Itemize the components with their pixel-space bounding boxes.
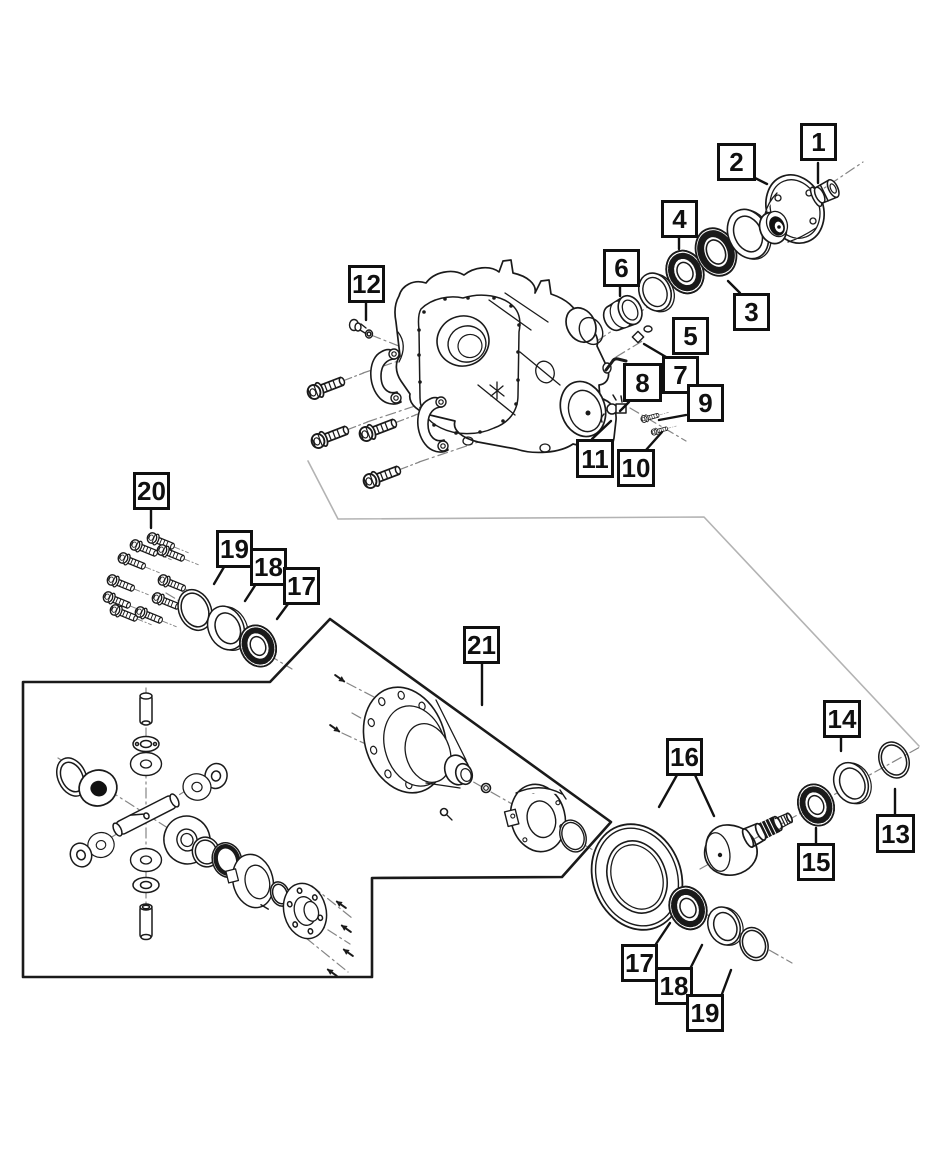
diagram-canvas: [0, 0, 950, 1153]
callout-17[interactable]: 17: [283, 567, 320, 605]
pinion-gear: [703, 808, 796, 875]
pinion-spacer-6: [599, 292, 647, 336]
callout-11[interactable]: 11: [576, 439, 614, 478]
callout-12[interactable]: 12: [348, 265, 385, 303]
callout-15[interactable]: 15: [797, 843, 835, 881]
differential-case: [328, 673, 591, 859]
callout-2[interactable]: 2: [717, 143, 756, 181]
spacer-14: [827, 756, 877, 810]
callout-3[interactable]: 3: [733, 293, 770, 331]
callout-20[interactable]: 20: [133, 472, 170, 510]
callout-17b[interactable]: 17: [621, 944, 658, 982]
callout-6[interactable]: 6: [603, 249, 640, 287]
filler-plug: [350, 320, 373, 339]
callout-16[interactable]: 16: [666, 738, 703, 776]
differential-internals: [51, 693, 355, 978]
callout-18[interactable]: 18: [250, 548, 287, 586]
callout-4[interactable]: 4: [661, 200, 698, 238]
callout-8[interactable]: 8: [623, 363, 662, 402]
callout-5[interactable]: 5: [672, 317, 709, 355]
callout-1[interactable]: 1: [800, 123, 837, 161]
callout-13[interactable]: 13: [876, 814, 915, 853]
oring-13: [873, 737, 915, 783]
pinion-flange-2: [755, 166, 834, 252]
callout-19[interactable]: 19: [216, 530, 253, 568]
callout-21[interactable]: 21: [463, 626, 500, 664]
callout-14[interactable]: 14: [823, 700, 861, 738]
pinion-rear-bearing-15: [791, 779, 840, 832]
callout-19b[interactable]: 19: [686, 994, 724, 1032]
callout-9[interactable]: 9: [687, 384, 724, 422]
parts-diagram-page: 1 2 4 6 3 5 7 8 9 11 10 12 20 19 18 17 2…: [0, 0, 950, 1153]
callout-10[interactable]: 10: [617, 449, 655, 487]
